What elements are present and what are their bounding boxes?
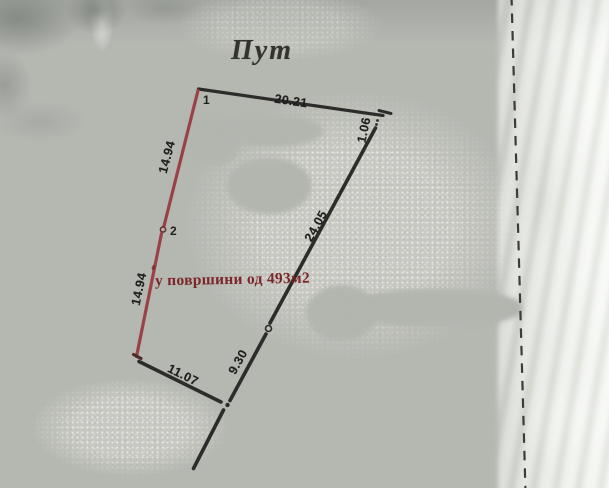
- parcel-drawing: [0, 0, 609, 488]
- boundary-point-circle: [266, 326, 272, 332]
- dashed-reference-line: [512, 0, 526, 488]
- point-2-circle: [160, 227, 165, 232]
- area-annotation: у површини од 493м2: [155, 270, 310, 291]
- corner-tick: [379, 111, 391, 114]
- corner-dot: [375, 123, 378, 126]
- point-1-label: 1: [203, 93, 210, 107]
- red-line-end-tick: [134, 355, 142, 359]
- corner-dot: [376, 119, 379, 122]
- junction-point: [225, 403, 229, 407]
- survey-sketch-photo: Пут 1 2 20.21 1.06 24.05 14.94 14.94 11.…: [0, 0, 609, 488]
- road-label: Пут: [231, 35, 293, 67]
- point-2-label: 2: [170, 224, 177, 238]
- boundary-extension-line: [194, 410, 224, 469]
